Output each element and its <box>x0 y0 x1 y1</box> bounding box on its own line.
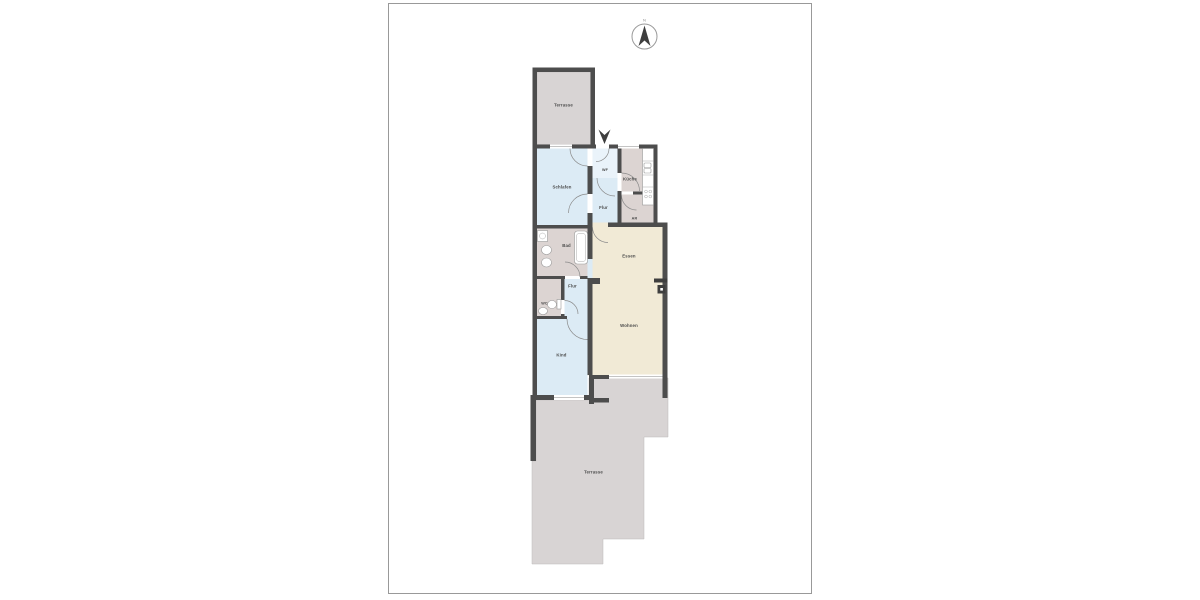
wall-segment <box>594 375 609 379</box>
toilet-cistern <box>557 300 561 310</box>
entrance-arrow-icon <box>599 130 611 145</box>
wall-segment <box>594 398 609 403</box>
compass-north-label: N <box>643 18 646 23</box>
room-terrace-top <box>537 72 591 145</box>
wall-segment <box>609 145 618 149</box>
label-kueche: Küche <box>623 177 637 182</box>
label-windfang: WF <box>602 168 609 172</box>
wall-segment <box>588 227 593 259</box>
label-flur-lower: Flur <box>568 284 577 289</box>
wall-segment <box>588 278 601 284</box>
canvas: N Terrasse Schlafen WF Küche Flur AR Bad… <box>0 0 1200 600</box>
room-essen-wohnen <box>588 223 663 376</box>
wall-segment <box>533 276 566 279</box>
label-essen: Essen <box>622 254 636 259</box>
wall-segment <box>533 145 538 401</box>
wall-segment <box>533 68 596 73</box>
wall-segment <box>533 68 538 145</box>
wc-sink <box>539 308 548 315</box>
wall-segment <box>533 225 588 229</box>
toilet <box>548 301 557 309</box>
room-flur-upper <box>593 178 618 223</box>
wall-segment <box>663 223 668 399</box>
wall-segment <box>561 279 565 300</box>
chimney-ledge <box>654 279 668 283</box>
wall-segment <box>608 223 668 228</box>
wall-segment <box>618 149 622 174</box>
room-windfang <box>593 149 618 179</box>
flur-passage <box>588 259 593 279</box>
wall-segment <box>591 68 596 145</box>
wall-segment <box>580 276 588 279</box>
wall-segment <box>533 145 551 149</box>
label-schlafen: Schlafen <box>552 185 571 190</box>
compass: N <box>632 18 657 50</box>
chimney-flue <box>660 288 663 291</box>
washing-machine <box>538 231 548 242</box>
washbasin <box>542 258 552 267</box>
wall-segment <box>654 145 658 223</box>
washbasin <box>542 246 552 255</box>
wall-segment <box>588 166 593 194</box>
label-wc: WC <box>541 302 548 306</box>
kitchen-sink <box>644 169 651 174</box>
label-wohnen: Wohnen <box>620 323 638 328</box>
page: N Terrasse Schlafen WF Küche Flur AR Bad… <box>388 3 812 594</box>
label-bad: Bad <box>562 243 571 248</box>
label-terrace-bottom: Terrasse <box>584 470 603 475</box>
wall-segment <box>588 316 593 375</box>
wall-segment <box>531 395 537 461</box>
wall-segment <box>618 191 622 223</box>
wall-segment <box>584 395 591 400</box>
wall-segment <box>533 316 568 319</box>
kitchen-sink <box>644 163 651 168</box>
label-kind: Kind <box>556 353 566 358</box>
wall-segment <box>588 284 593 316</box>
wall-segment <box>572 145 596 149</box>
wall-segment <box>588 213 593 227</box>
label-abstellraum: AR <box>632 217 638 221</box>
label-terrace-top: Terrasse <box>554 103 573 108</box>
floor-plan: N Terrasse Schlafen WF Küche Flur AR Bad… <box>389 4 813 595</box>
label-flur-upper: Flur <box>599 205 608 210</box>
